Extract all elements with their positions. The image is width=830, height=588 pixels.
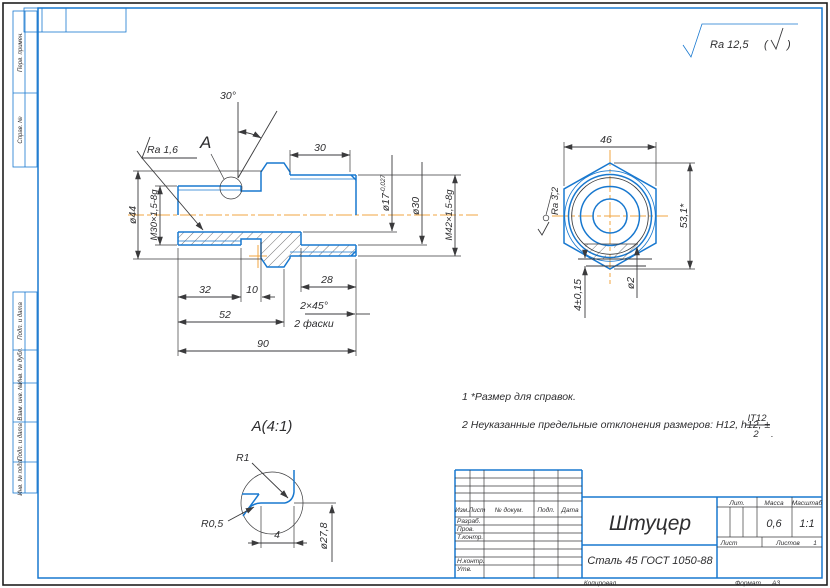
margin-label-perv-primen: Перв. примен. <box>18 32 24 72</box>
dim-46: 46 <box>600 134 612 146</box>
drawing-frame <box>38 8 822 578</box>
detail-dims: R1 R0,5 4 ø27,8 <box>201 452 332 562</box>
detail-a-title: A(4:1) <box>251 418 293 435</box>
dim-dia30: ø30 <box>410 197 422 215</box>
note-frac-num: IT12 <box>747 413 767 424</box>
format-label: Формат <box>735 580 761 587</box>
angle-dim-30deg: 30° <box>220 90 277 178</box>
dim-r1: R1 <box>236 452 249 464</box>
ra32-text: Ra 3,2 <box>550 186 561 215</box>
dim-r05: R0,5 <box>201 518 223 530</box>
general-roughness-value: Ra 12,5 <box>710 39 749 51</box>
dim-dia2: ø2 <box>625 277 637 289</box>
roughness-ra16: Ra 1,6 <box>137 137 203 230</box>
col-list: Лист <box>468 507 486 514</box>
dim-dia278: ø27,8 <box>318 522 330 549</box>
dim-90: 90 <box>257 338 269 350</box>
drawing-sheet-svg: Перв. примен. Справ. № Подп. и дата Инв.… <box>0 0 830 588</box>
sheet-label: Лист <box>720 540 738 547</box>
roughness-ra32: Ra 3,2 <box>538 186 561 235</box>
title-block: Изм. Лист № докум. Подп. Дата Разраб. Пр… <box>455 470 823 578</box>
dim-10: 10 <box>246 284 258 296</box>
dim-531: 53,1* <box>678 203 690 228</box>
row-nkontr: Н.контр. <box>457 558 485 565</box>
dim-52: 52 <box>219 309 231 321</box>
sheets-value: 1 <box>813 540 817 547</box>
format-value: A3 <box>771 580 780 587</box>
mass-value: 0,6 <box>766 518 782 530</box>
lit-label: Лит. <box>728 500 744 507</box>
detail-callout-a: A <box>199 133 242 199</box>
note-1: 1 *Размер для справок. <box>462 391 576 403</box>
main-view: A 30° Ra 1,6 <box>127 90 478 356</box>
material: Сталь 45 ГОСТ 1050-88 <box>587 555 713 567</box>
technical-notes: 1 *Размер для справок. 2 Неуказанные пре… <box>461 391 774 440</box>
dim-4-015: 4±0,15 <box>572 279 584 311</box>
dim-30: 30 <box>314 142 326 154</box>
margin-column: Перв. примен. Справ. № Подп. и дата Инв.… <box>13 11 37 496</box>
row-prov: Пров. <box>457 526 474 533</box>
callout-a-label: A <box>199 133 211 152</box>
paren-close: ) <box>785 39 791 51</box>
col-date: Дата <box>560 507 579 514</box>
row-razrab: Разраб. <box>457 517 481 525</box>
side-view: 46 53,1* ø2 4±0,15 Ra 3,2 <box>538 134 695 318</box>
chamfer-qty: 2 фаски <box>293 318 334 330</box>
dim-m42: M42×1,5-8g <box>444 189 455 241</box>
section-hatching <box>178 232 356 267</box>
dim-4: 4 <box>274 529 280 541</box>
part-name: Штуцер <box>609 512 691 535</box>
sheets-label: Листов <box>775 540 800 547</box>
margin-label-inv-dubl: Инв. № дубл. <box>17 348 24 385</box>
row-utv: Утв. <box>456 566 472 573</box>
margin-label-vzam-inv: Взам. инв. № <box>17 383 24 421</box>
chamfer-dim: 2×45° <box>299 300 328 312</box>
note-2: 2 Неуказанные предельные отклонения разм… <box>461 419 770 431</box>
small-check-icon <box>771 28 783 49</box>
local-section <box>578 244 652 266</box>
dim-dia17: ø17-0,027 <box>380 174 392 211</box>
dim-32: 32 <box>199 284 211 296</box>
col-izm: Изм. <box>455 507 469 514</box>
ra16-text: Ra 1,6 <box>147 144 178 156</box>
corner-stamp <box>24 8 126 32</box>
dim-28: 28 <box>320 274 333 286</box>
margin-label-podp-data-1: Подп. и дата <box>18 302 24 340</box>
note-2-period: . <box>771 429 774 440</box>
margin-label-sprav: Справ. № <box>17 116 24 144</box>
note-frac-den: 2 <box>752 429 759 440</box>
angle-30-text: 30° <box>220 90 236 102</box>
scale-label: Масштаб <box>792 499 823 507</box>
title-block-labels: Изм. Лист № докум. Подп. Дата Разраб. Пр… <box>455 499 822 573</box>
scale-value: 1:1 <box>799 518 814 530</box>
mass-label: Масса <box>764 500 784 507</box>
copied-label: Копировал <box>584 580 617 587</box>
dim-dia44: ø44 <box>127 206 139 224</box>
general-roughness: Ra 12,5 ( ) <box>683 24 798 57</box>
margin-label-podp-data-2: Подп. и дата <box>18 423 24 461</box>
row-tkontr: Т.контр. <box>457 534 483 541</box>
paren-open: ( <box>764 39 769 51</box>
bottom-strip: Копировал Формат A3 <box>584 580 781 587</box>
margin-label-inv-podl: Инв. № подл. <box>17 458 24 495</box>
side-dims: 46 53,1* ø2 4±0,15 <box>564 134 695 318</box>
col-doc: № докум. <box>495 506 524 514</box>
dim-m30: M30×1,5-8g <box>149 189 160 241</box>
col-sign: Подп. <box>537 506 554 514</box>
drawing-sheet: Перв. примен. Справ. № Подп. и дата Инв.… <box>0 0 830 588</box>
detail-view-a: A(4:1) R1 R0,5 4 ø27,8 <box>201 418 336 562</box>
